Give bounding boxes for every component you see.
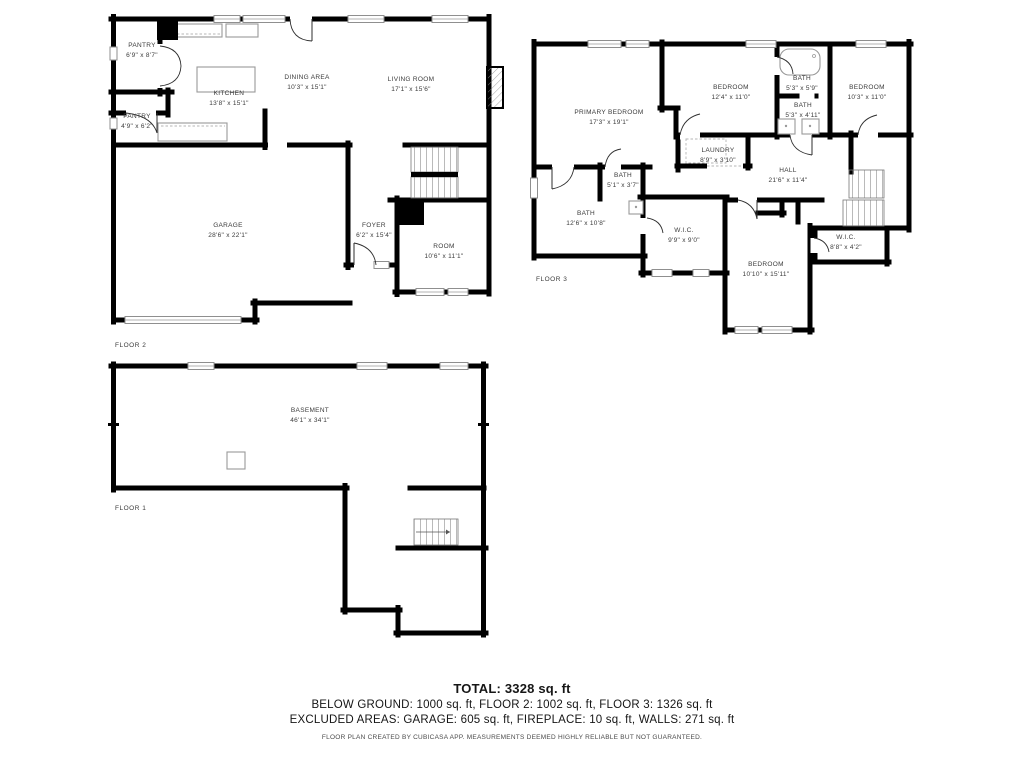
floor-2-label: FLOOR 2 <box>115 342 146 349</box>
room-label-dining-area: DINING AREA10'3" x 15'1" <box>284 73 329 93</box>
excluded-areas-text: EXCLUDED AREAS: GARAGE: 605 sq. ft, FIRE… <box>0 714 1024 726</box>
room-label-hall: HALL21'6" x 11'4" <box>768 166 807 186</box>
room-label-bath-2: BATH5'3" x 4'11" <box>785 101 820 121</box>
floor-3-label: FLOOR 3 <box>536 276 567 283</box>
room-label-foyer: FOYER6'2" x 15'4" <box>356 221 392 241</box>
support-column <box>227 452 245 469</box>
room-label-pantry-1: PANTRY6'9" x 8'7" <box>126 41 158 61</box>
room-label-bath-4: BATH12'6" x 10'8" <box>566 209 606 229</box>
chimney-block <box>157 19 178 40</box>
room-label-bedroom-3: BEDROOM10'10" x 15'11" <box>743 260 790 280</box>
floor-areas-text: BELOW GROUND: 1000 sq. ft, FLOOR 2: 1002… <box>0 699 1024 711</box>
floor-1-stairs <box>414 519 458 545</box>
room-label-basement: BASEMENT46'1" x 34'1" <box>290 406 330 426</box>
floor-1-plan <box>108 363 489 636</box>
room-label-wic-1: W.I.C.9'9" x 9'0" <box>668 226 700 246</box>
kitchen-counters <box>158 24 258 141</box>
total-area-text: TOTAL: 3328 sq. ft <box>0 681 1024 696</box>
room-label-garage: GARAGE28'6" x 22'1" <box>208 221 248 241</box>
room-label-wic-2: W.I.C.8'8" x 4'2" <box>830 233 862 253</box>
room-label-bath-3: BATH5'1" x 3'7" <box>607 171 639 191</box>
room-label-pantry-2: PANTRY4'9" x 6'2" <box>121 112 153 132</box>
floor-plan-drawing <box>0 0 1024 768</box>
room-label-living-room: LIVING ROOM17'1" x 15'6" <box>388 75 435 95</box>
bathtub <box>780 49 820 75</box>
floor-1-label: FLOOR 1 <box>115 505 146 512</box>
chimney-block <box>399 202 424 225</box>
room-label-bedroom-1: BEDROOM12'4" x 11'0" <box>711 83 750 103</box>
floor-2-stairs <box>411 147 458 198</box>
floor-3-windows <box>531 41 887 334</box>
area-summary: TOTAL: 3328 sq. ft BELOW GROUND: 1000 sq… <box>0 681 1024 741</box>
room-label-primary-bedroom: PRIMARY BEDROOM17'3" x 19'1" <box>574 108 643 128</box>
floor-3-stairs <box>843 170 884 226</box>
floor-2-plan <box>110 15 503 324</box>
room-label-bedroom-2: BEDROOM10'3" x 11'0" <box>847 83 886 103</box>
room-label-room: ROOM10'6" x 11'1" <box>424 242 463 262</box>
fireplace <box>487 67 503 108</box>
room-label-bath-1: BATH5'3" x 5'9" <box>786 74 818 94</box>
room-label-laundry: LAUNDRY8'9" x 3'10" <box>700 146 736 166</box>
disclaimer-text: FLOOR PLAN CREATED BY CUBICASA APP. MEAS… <box>0 734 1024 741</box>
floor-plan-canvas: PANTRY6'9" x 8'7" PANTRY4'9" x 6'2" KITC… <box>0 0 1024 768</box>
room-label-kitchen: KITCHEN13'8" x 15'1" <box>209 89 249 109</box>
